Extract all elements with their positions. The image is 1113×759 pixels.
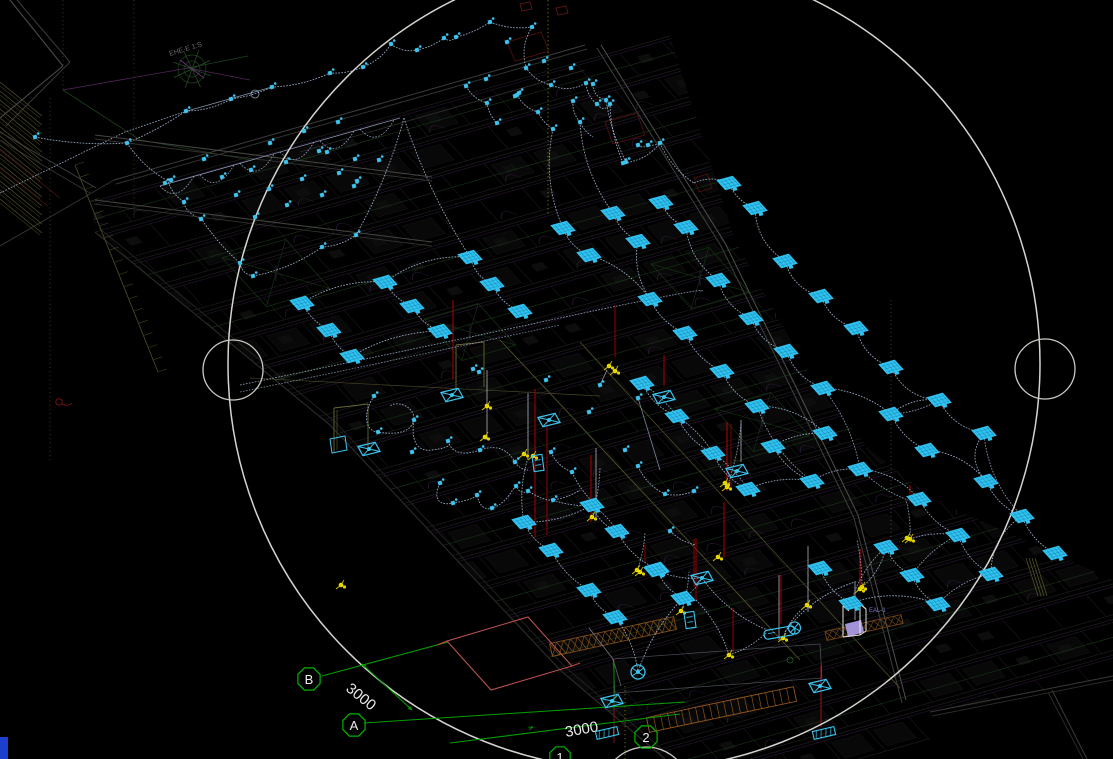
svg-text:EAL-1: EAL-1 xyxy=(869,608,886,614)
svg-text:1: 1 xyxy=(556,750,563,759)
svg-text:2: 2 xyxy=(642,730,649,745)
svg-text:B: B xyxy=(305,672,314,687)
svg-text:A: A xyxy=(350,718,359,733)
